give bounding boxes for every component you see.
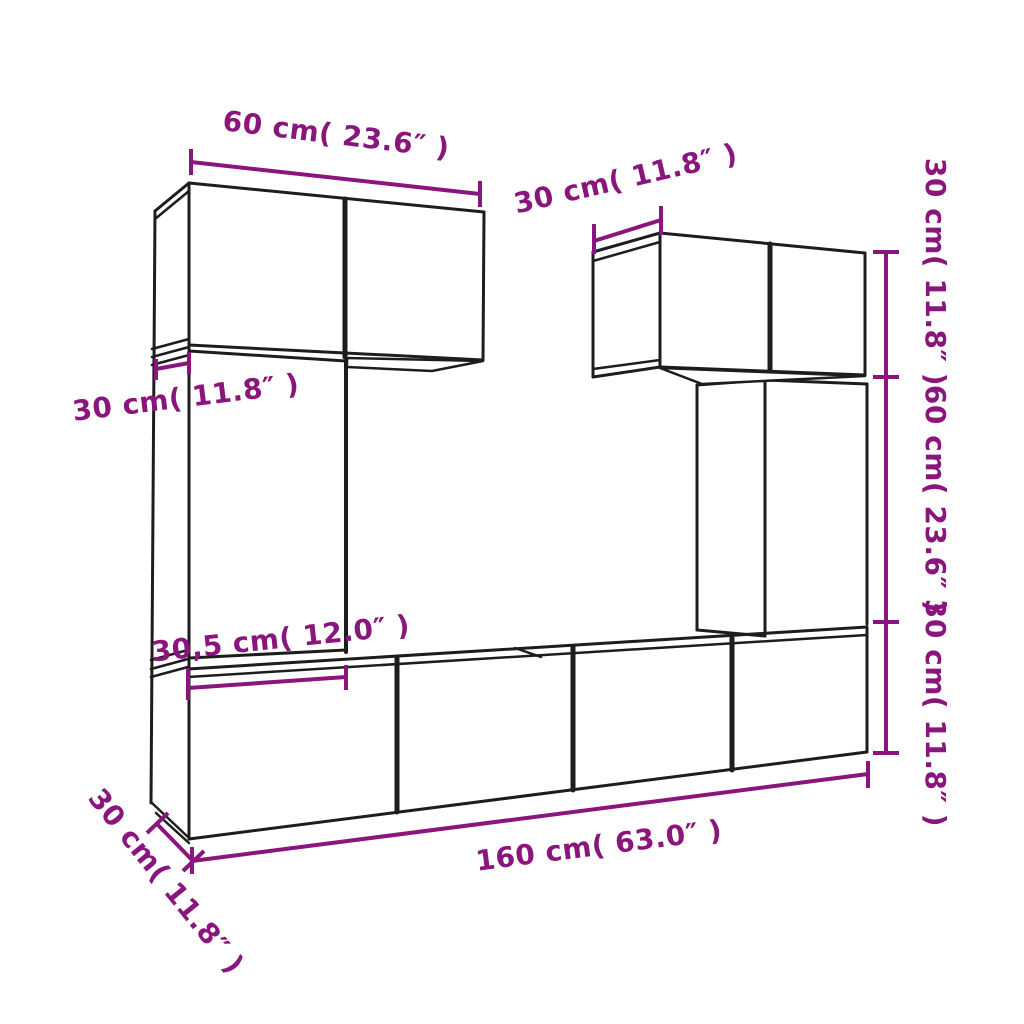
dim-label-right-30cm-top: 30 cm( 11.8″ ) [919, 158, 952, 386]
diagram-canvas: 60 cm( 23.6″ )30 cm( 11.8″ )30 cm( 11.8″… [0, 0, 1024, 1024]
dim-label-right-60cm: 60 cm( 23.6″ ) [919, 385, 952, 613]
cabinet-edge-line [483, 212, 484, 360]
tv-wall-unit-dimension-diagram: 60 cm( 23.6″ )30 cm( 11.8″ )30 cm( 11.8″… [0, 0, 1024, 1024]
dim-label-right-30cm-bottom: 30 cm( 11.8″ ) [919, 599, 952, 827]
